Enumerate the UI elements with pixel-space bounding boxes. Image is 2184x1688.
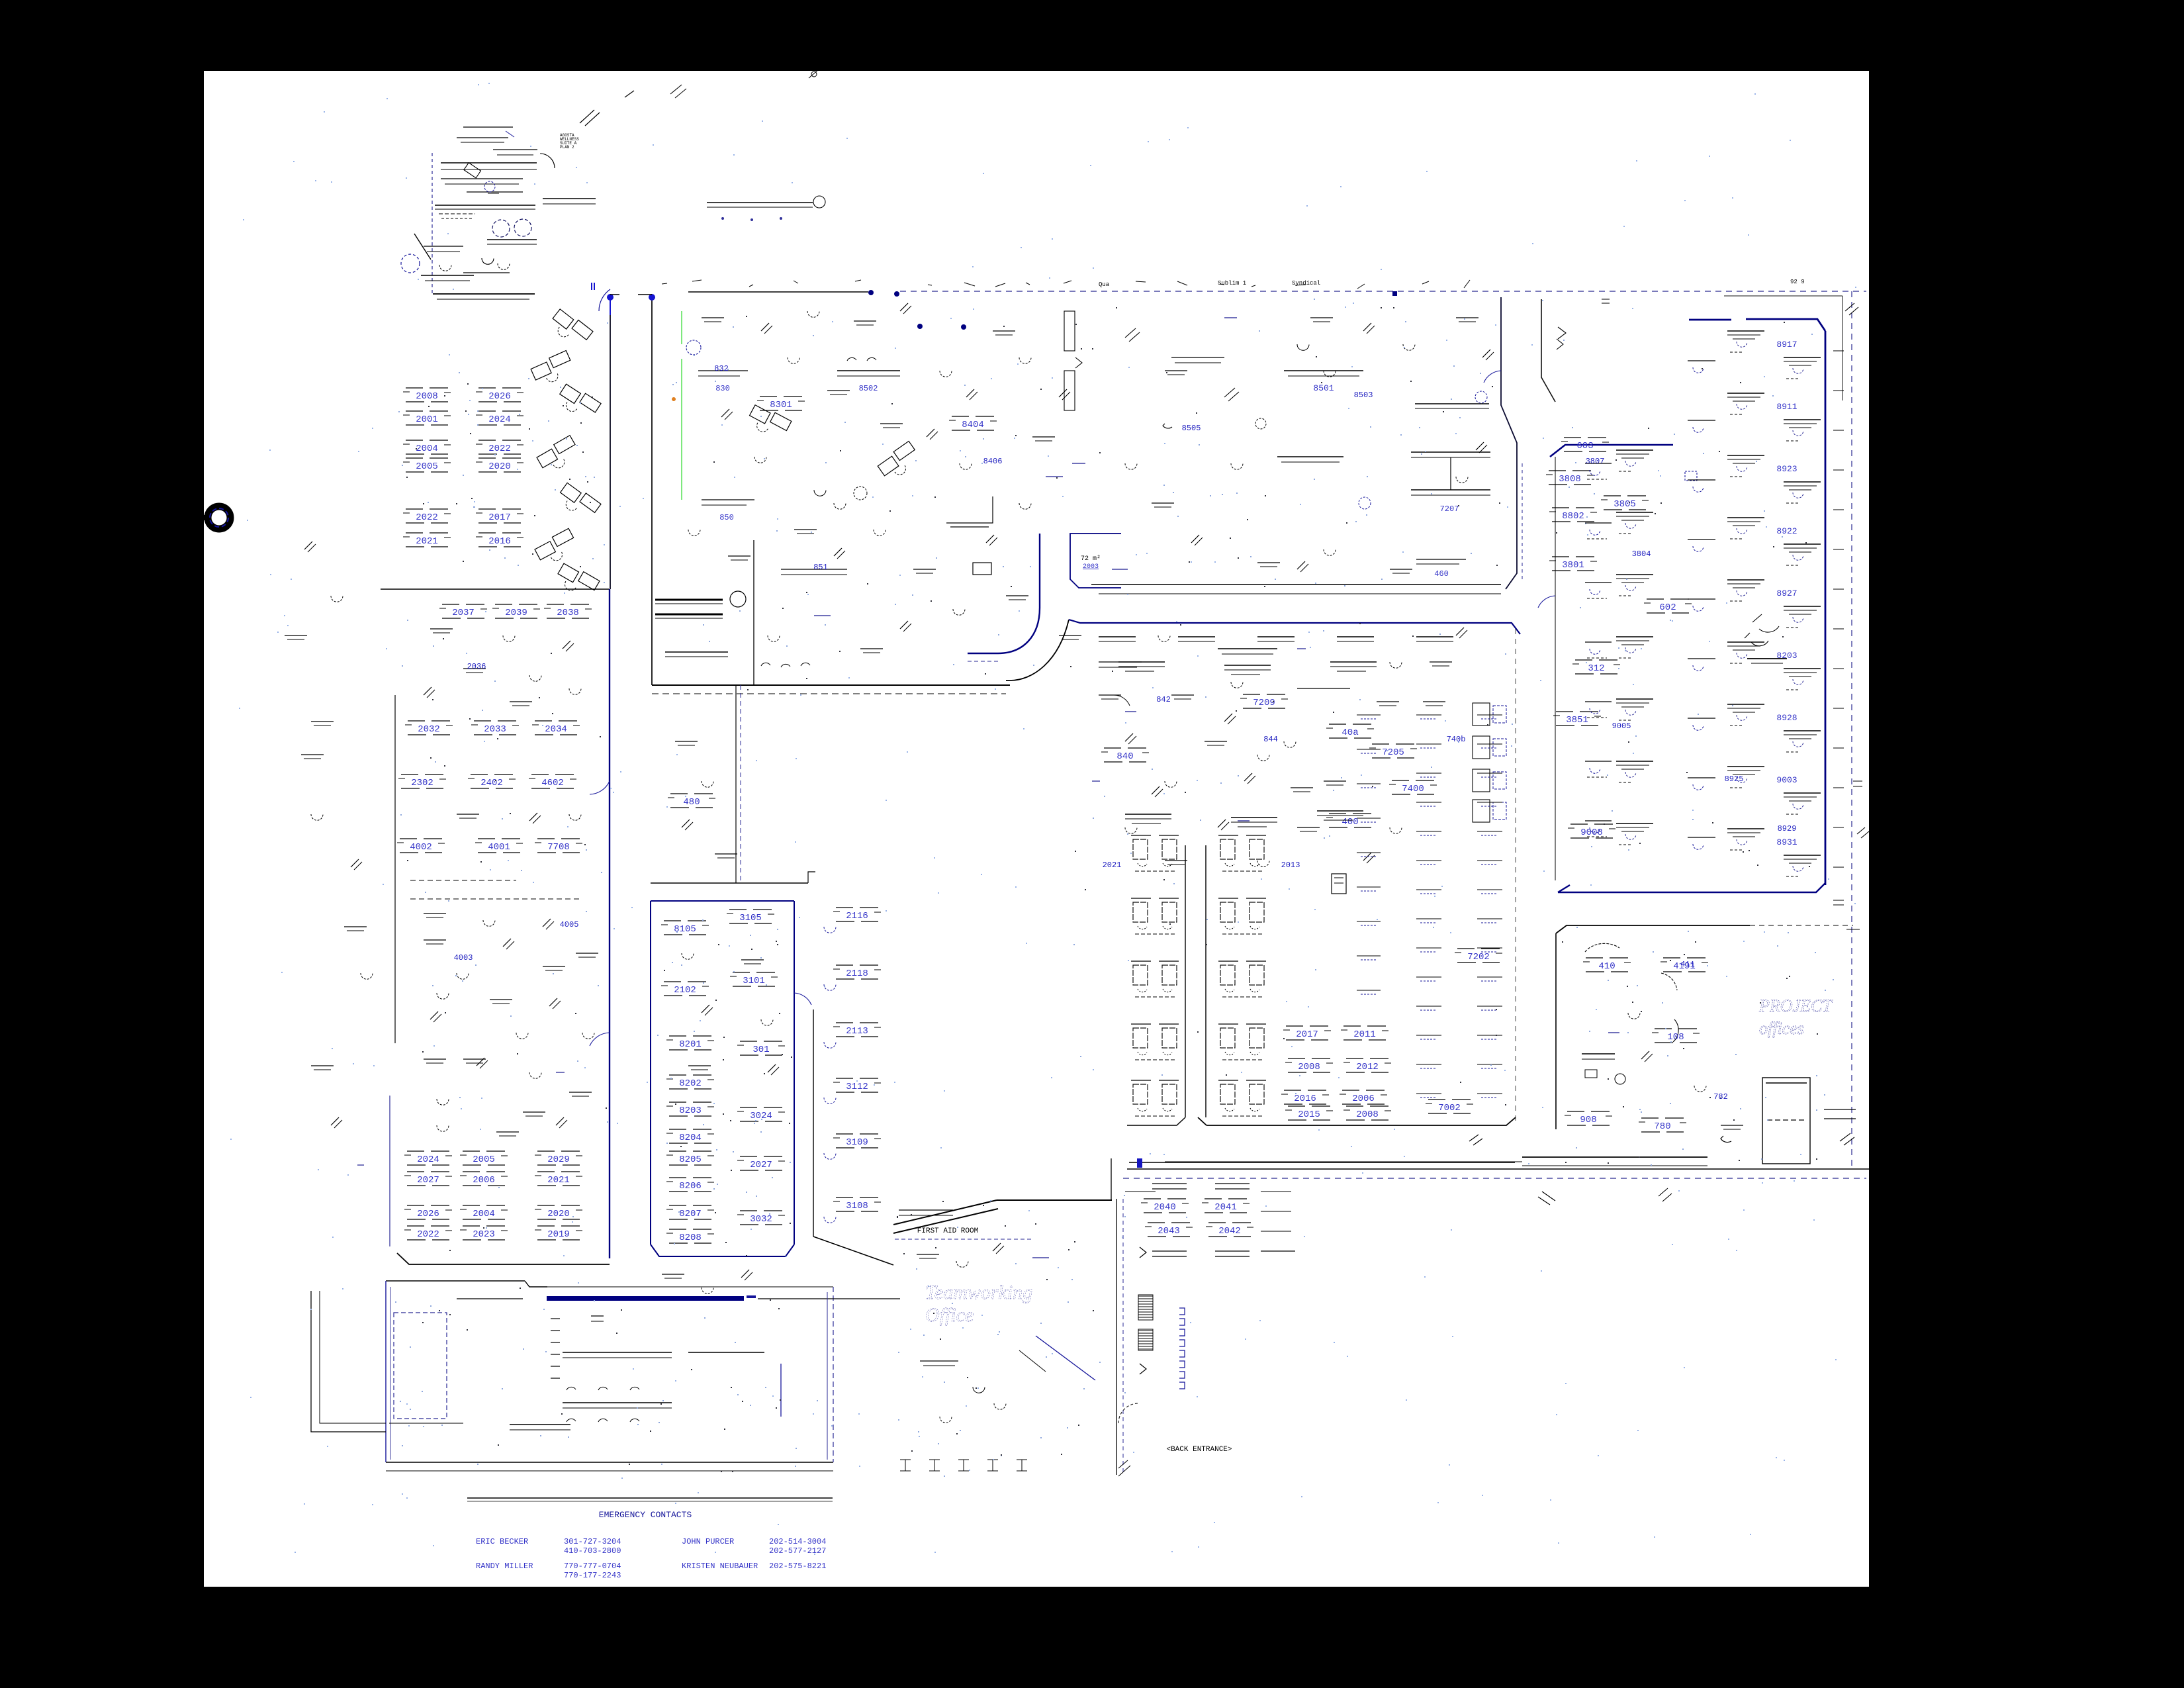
svg-text:2033: 2033 (484, 724, 506, 735)
svg-text:KRISTEN NEUBAUER: KRISTEN NEUBAUER (682, 1562, 758, 1571)
svg-text:offices: offices (1759, 1019, 1804, 1038)
svg-text:FIRST AID ROOM: FIRST AID ROOM (917, 1227, 978, 1235)
svg-text:2402: 2402 (480, 778, 503, 788)
svg-text:2021: 2021 (1103, 861, 1122, 870)
svg-text:410: 410 (1598, 961, 1615, 972)
svg-text:8505: 8505 (1182, 424, 1201, 433)
svg-text:2026: 2026 (417, 1209, 439, 1219)
svg-text:770-177-2243: 770-177-2243 (564, 1571, 621, 1580)
svg-text:Office: Office (925, 1304, 974, 1326)
svg-text:9003: 9003 (1776, 775, 1797, 785)
svg-text:3851: 3851 (1566, 715, 1588, 726)
svg-text:908: 908 (1580, 1115, 1596, 1125)
svg-text:2022: 2022 (416, 512, 438, 523)
svg-text:2004: 2004 (473, 1209, 495, 1219)
svg-text:840: 840 (1116, 751, 1133, 762)
svg-text:<BACK ENTRANCE>: <BACK ENTRANCE> (1166, 1446, 1232, 1454)
svg-text:2102: 2102 (674, 985, 696, 996)
svg-text:480: 480 (683, 797, 700, 808)
svg-text:8911: 8911 (1776, 402, 1797, 412)
svg-text:844: 844 (1263, 735, 1278, 744)
svg-text:108: 108 (1667, 1032, 1684, 1043)
svg-text:92 9: 92 9 (1790, 279, 1805, 285)
svg-text:8923: 8923 (1776, 464, 1797, 474)
svg-text:9005: 9005 (1612, 722, 1631, 731)
svg-text:842: 842 (1156, 695, 1171, 704)
svg-text:8929: 8929 (1778, 824, 1797, 833)
svg-text:2003: 2003 (1083, 563, 1099, 571)
svg-text:2016: 2016 (1294, 1094, 1316, 1104)
svg-text:8927: 8927 (1776, 588, 1797, 598)
svg-text:Sublim 1: Sublim 1 (1218, 280, 1246, 287)
svg-text:8501: 8501 (1313, 383, 1334, 393)
svg-text:8301: 8301 (770, 400, 792, 410)
svg-text:851: 851 (813, 563, 828, 572)
svg-text:2022: 2022 (488, 444, 511, 454)
svg-text:4003: 4003 (454, 953, 473, 962)
svg-text:3807: 3807 (1586, 457, 1605, 466)
svg-text:2113: 2113 (846, 1026, 868, 1037)
svg-text:2012: 2012 (1356, 1062, 1379, 1072)
svg-text:2005: 2005 (473, 1154, 495, 1165)
svg-text:8204: 8204 (679, 1133, 702, 1143)
svg-text:301: 301 (752, 1045, 769, 1055)
svg-text:2118: 2118 (846, 968, 868, 979)
svg-text:2036: 2036 (467, 662, 486, 671)
svg-text:8802: 8802 (1562, 511, 1584, 522)
svg-text:3101: 3101 (743, 976, 765, 986)
svg-text:8202: 8202 (679, 1078, 702, 1089)
svg-text:2029: 2029 (547, 1154, 570, 1165)
svg-text:2005: 2005 (416, 461, 438, 472)
svg-text:2020: 2020 (488, 461, 511, 472)
svg-text:ERIC BECKER: ERIC BECKER (476, 1537, 528, 1546)
svg-text:8207: 8207 (679, 1209, 702, 1219)
svg-text:2001: 2001 (416, 414, 438, 425)
svg-text:2019: 2019 (547, 1229, 570, 1240)
svg-text:2032: 2032 (418, 724, 440, 735)
svg-text:8203: 8203 (679, 1105, 702, 1116)
svg-text:2013: 2013 (1281, 861, 1300, 870)
svg-text:850: 850 (719, 513, 734, 522)
svg-text:40a: 40a (1342, 727, 1358, 738)
svg-text:8201: 8201 (679, 1039, 702, 1050)
svg-text:3112: 3112 (846, 1082, 868, 1092)
svg-text:8931: 8931 (1776, 837, 1797, 847)
svg-text:2037: 2037 (452, 608, 475, 618)
svg-text:3108: 3108 (846, 1201, 868, 1211)
svg-text:8406: 8406 (983, 457, 1003, 466)
svg-text:830: 830 (715, 384, 730, 393)
svg-text:Qua: Qua (1099, 281, 1110, 288)
svg-text:7202: 7202 (1467, 952, 1490, 962)
svg-text:PROJECT: PROJECT (1758, 996, 1833, 1015)
svg-text:782: 782 (1713, 1092, 1728, 1102)
svg-text:2023: 2023 (473, 1229, 495, 1240)
svg-text:2008: 2008 (1356, 1109, 1379, 1120)
svg-text:3808: 3808 (1559, 474, 1581, 485)
svg-text:2043: 2043 (1158, 1226, 1180, 1237)
svg-text:2022: 2022 (417, 1229, 439, 1240)
svg-text:2024: 2024 (488, 414, 511, 425)
svg-text:8917: 8917 (1776, 340, 1797, 350)
svg-text:2042: 2042 (1218, 1226, 1241, 1237)
svg-text:2008: 2008 (1298, 1062, 1320, 1072)
svg-text:3801: 3801 (1562, 560, 1584, 571)
svg-text:8502: 8502 (859, 384, 878, 393)
svg-text:8105: 8105 (674, 924, 696, 935)
svg-text:7708: 7708 (547, 842, 570, 853)
svg-text:2016: 2016 (488, 536, 511, 547)
svg-text:8922: 8922 (1776, 526, 1797, 536)
svg-text:2020: 2020 (547, 1209, 570, 1219)
svg-text:312: 312 (1588, 663, 1604, 674)
svg-text:EMERGENCY CONTACTS: EMERGENCY CONTACTS (599, 1510, 692, 1520)
svg-text:4001: 4001 (488, 842, 510, 853)
svg-text:8208: 8208 (679, 1233, 702, 1243)
svg-text:2027: 2027 (417, 1175, 439, 1186)
svg-text:2034: 2034 (545, 724, 567, 735)
svg-text:202-577-2127: 202-577-2127 (769, 1546, 826, 1556)
svg-text:2017: 2017 (488, 512, 511, 523)
svg-text:7209: 7209 (1253, 698, 1275, 708)
svg-text:2008: 2008 (416, 391, 438, 402)
svg-text:8206: 8206 (679, 1181, 702, 1192)
svg-text:7002: 7002 (1438, 1103, 1461, 1113)
svg-text:RANDY MILLER: RANDY MILLER (476, 1562, 533, 1571)
svg-text:2017: 2017 (1296, 1029, 1318, 1040)
svg-text:8205: 8205 (679, 1154, 702, 1165)
svg-text:832: 832 (714, 364, 729, 373)
svg-text:770-777-0704: 770-777-0704 (564, 1562, 621, 1571)
svg-text:8928: 8928 (1776, 713, 1797, 723)
svg-text:8404: 8404 (962, 420, 984, 430)
svg-text:2024: 2024 (417, 1154, 439, 1165)
svg-text:2040: 2040 (1154, 1202, 1176, 1213)
svg-text:2004: 2004 (416, 444, 438, 454)
svg-text:2021: 2021 (416, 536, 438, 547)
svg-text:8503: 8503 (1354, 391, 1373, 400)
svg-text:202-514-3004: 202-514-3004 (769, 1537, 826, 1546)
svg-text:7400: 7400 (1402, 784, 1424, 794)
svg-text:4005: 4005 (560, 920, 579, 929)
svg-text:2006: 2006 (1352, 1094, 1375, 1104)
svg-text:72 m²: 72 m² (1081, 555, 1101, 563)
svg-text:400: 400 (1342, 817, 1358, 827)
svg-text:4602: 4602 (541, 778, 564, 788)
svg-text:2011: 2011 (1353, 1029, 1376, 1040)
svg-text:301-727-3204: 301-727-3204 (564, 1537, 621, 1546)
svg-text:3805: 3805 (1614, 499, 1636, 510)
svg-text:3109: 3109 (846, 1137, 868, 1148)
svg-text:2027: 2027 (750, 1160, 772, 1170)
svg-text:2302: 2302 (411, 778, 433, 788)
svg-text:2038: 2038 (557, 608, 579, 618)
svg-text:3105: 3105 (739, 913, 762, 923)
svg-text:Teamworking: Teamworking (925, 1282, 1032, 1303)
svg-text:410-703-2800: 410-703-2800 (564, 1546, 621, 1556)
svg-text:Syndical: Syndical (1292, 280, 1320, 287)
svg-text:2116: 2116 (846, 911, 868, 921)
svg-text:4002: 4002 (410, 842, 432, 853)
svg-text:603: 603 (1576, 441, 1593, 451)
svg-text:2039: 2039 (505, 608, 527, 618)
svg-text:8925: 8925 (1725, 774, 1744, 784)
svg-text:3032: 3032 (750, 1214, 772, 1225)
svg-text:7207: 7207 (1440, 504, 1459, 514)
svg-text:3804: 3804 (1632, 549, 1651, 559)
svg-text:2041: 2041 (1214, 1202, 1237, 1213)
svg-text:PLAN 2: PLAN 2 (560, 145, 574, 150)
svg-text:7205: 7205 (1382, 747, 1404, 758)
svg-text:2026: 2026 (488, 391, 511, 402)
svg-text:JOHN PURCER: JOHN PURCER (682, 1537, 734, 1546)
svg-text:460: 460 (1434, 569, 1449, 579)
svg-text:740b: 740b (1447, 735, 1466, 744)
svg-text:202-575-8221: 202-575-8221 (769, 1562, 826, 1571)
svg-text:411: 411 (1680, 960, 1695, 969)
svg-text:2006: 2006 (473, 1175, 495, 1186)
svg-text:2015: 2015 (1298, 1109, 1320, 1120)
svg-text:780: 780 (1654, 1121, 1670, 1132)
svg-text:602: 602 (1659, 602, 1676, 613)
svg-text:2021: 2021 (547, 1175, 570, 1186)
